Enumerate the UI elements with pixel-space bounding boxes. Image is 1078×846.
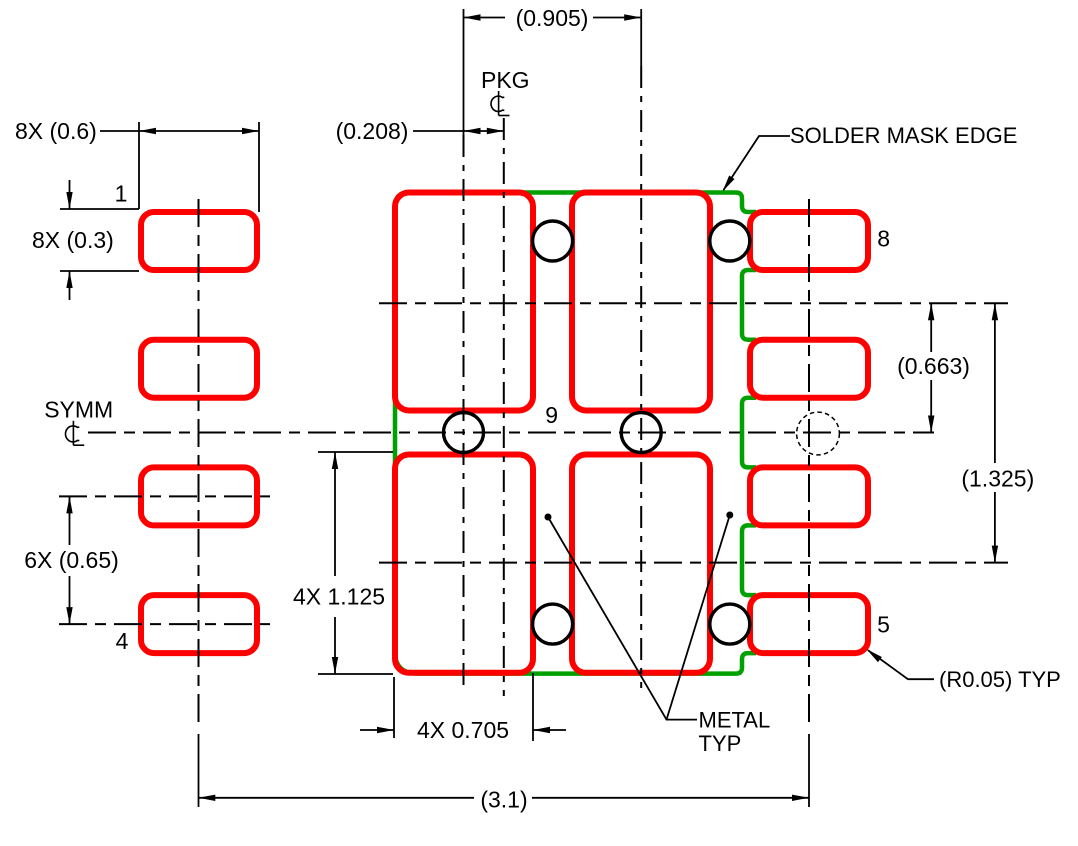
svg-text:(1.325): (1.325): [961, 465, 1034, 491]
svg-text:METAL: METAL: [699, 708, 771, 733]
svg-text:TYP: TYP: [699, 731, 742, 756]
svg-text:8X (0.6): 8X (0.6): [15, 118, 97, 144]
svg-text:4X 0.705: 4X 0.705: [417, 717, 509, 743]
svg-text:(R0.05) TYP: (R0.05) TYP: [939, 667, 1061, 692]
svg-text:6X (0.65): 6X (0.65): [24, 547, 119, 573]
svg-text:1: 1: [115, 181, 128, 207]
svg-text:PKG: PKG: [481, 67, 530, 93]
svg-text:4: 4: [116, 628, 129, 654]
svg-text:SOLDER MASK EDGE: SOLDER MASK EDGE: [790, 123, 1017, 148]
svg-text:4X 1.125: 4X 1.125: [293, 583, 385, 609]
svg-text:8X (0.3): 8X (0.3): [32, 227, 114, 253]
svg-text:(3.1): (3.1): [480, 787, 527, 813]
svg-text:(0.905): (0.905): [516, 5, 589, 31]
svg-text:(0.208): (0.208): [336, 118, 409, 144]
svg-text:9: 9: [545, 402, 558, 428]
svg-text:5: 5: [877, 612, 890, 638]
svg-text:8: 8: [877, 226, 890, 252]
svg-text:SYMM: SYMM: [44, 397, 113, 423]
svg-text:(0.663): (0.663): [897, 353, 970, 379]
